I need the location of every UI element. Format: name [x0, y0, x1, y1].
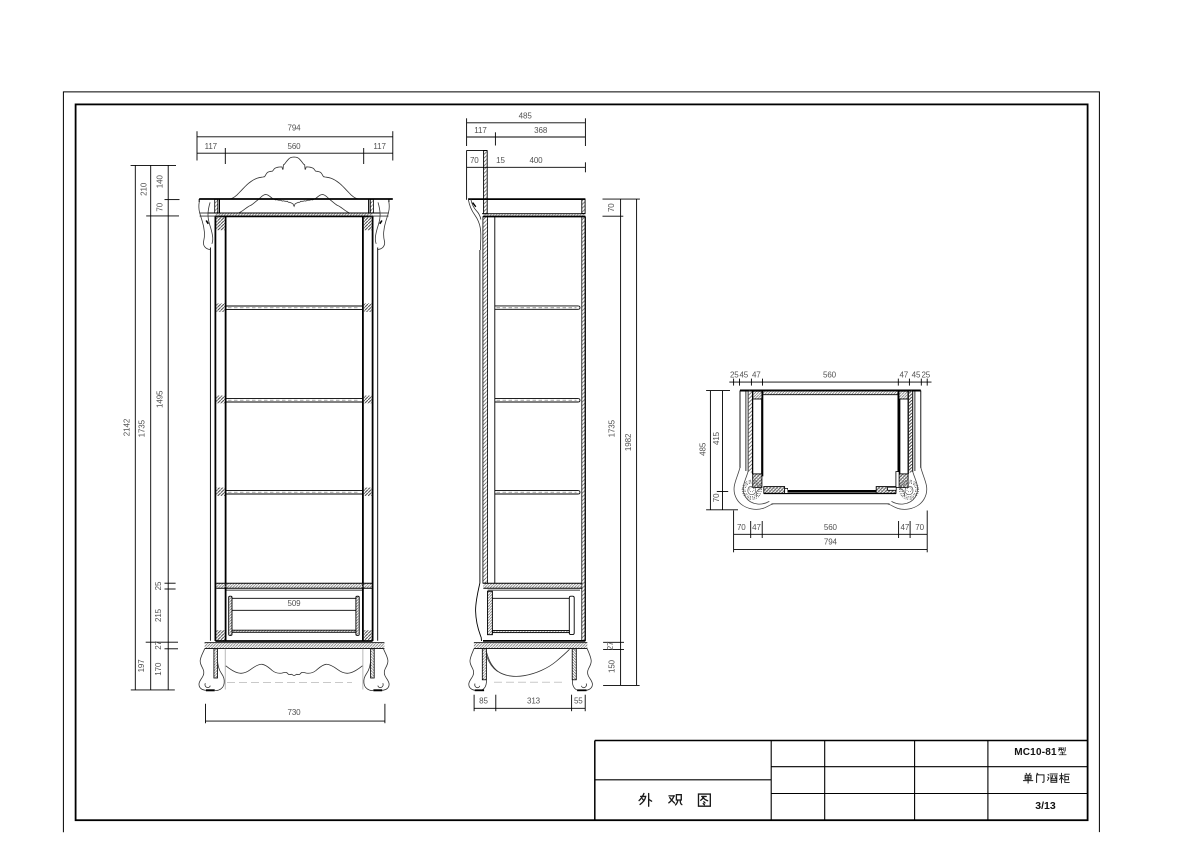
svg-text:140: 140 [156, 175, 165, 189]
svg-text:1735: 1735 [608, 419, 617, 437]
svg-text:55: 55 [574, 697, 583, 706]
svg-text:25: 25 [154, 581, 163, 590]
svg-text:415: 415 [712, 431, 721, 445]
svg-text:85: 85 [479, 697, 488, 706]
svg-text:MC10-81: MC10-81 [1014, 747, 1057, 758]
svg-text:197: 197 [137, 659, 146, 673]
svg-text:70: 70 [156, 202, 165, 211]
svg-text:730: 730 [287, 708, 301, 717]
svg-text:25: 25 [730, 371, 739, 380]
svg-text:215: 215 [154, 608, 163, 622]
svg-text:1735: 1735 [137, 419, 146, 437]
svg-text:1982: 1982 [624, 433, 633, 451]
svg-text:560: 560 [287, 142, 301, 151]
svg-text:47: 47 [752, 371, 761, 380]
svg-text:47: 47 [899, 371, 908, 380]
svg-text:1495: 1495 [155, 390, 164, 408]
svg-text:117: 117 [474, 126, 487, 135]
svg-text:509: 509 [287, 599, 301, 608]
svg-text:150: 150 [608, 659, 617, 673]
svg-text:27: 27 [606, 641, 615, 650]
svg-text:70: 70 [915, 523, 924, 532]
svg-text:313: 313 [527, 697, 541, 706]
svg-text:70: 70 [470, 156, 479, 165]
svg-text:485: 485 [698, 442, 707, 456]
svg-text:117: 117 [373, 142, 386, 151]
svg-text:45: 45 [912, 371, 921, 380]
svg-text:70: 70 [712, 493, 721, 502]
svg-text:25: 25 [921, 371, 930, 380]
svg-text:210: 210 [140, 182, 149, 196]
svg-text:70: 70 [737, 523, 746, 532]
svg-text:368: 368 [534, 126, 548, 135]
svg-text:560: 560 [823, 371, 837, 380]
svg-text:45: 45 [739, 371, 748, 380]
svg-text:27: 27 [154, 640, 163, 649]
svg-text:560: 560 [824, 523, 838, 532]
svg-text:794: 794 [824, 538, 838, 547]
svg-text:15: 15 [496, 156, 505, 165]
svg-text:485: 485 [519, 111, 533, 120]
svg-text:170: 170 [154, 662, 163, 676]
svg-text:47: 47 [752, 523, 761, 532]
svg-text:3/13: 3/13 [1035, 800, 1056, 812]
svg-text:117: 117 [205, 142, 218, 151]
svg-text:794: 794 [287, 124, 301, 133]
svg-text:2142: 2142 [122, 418, 131, 436]
svg-text:47: 47 [901, 523, 910, 532]
svg-text:400: 400 [529, 156, 543, 165]
svg-text:70: 70 [607, 203, 616, 212]
